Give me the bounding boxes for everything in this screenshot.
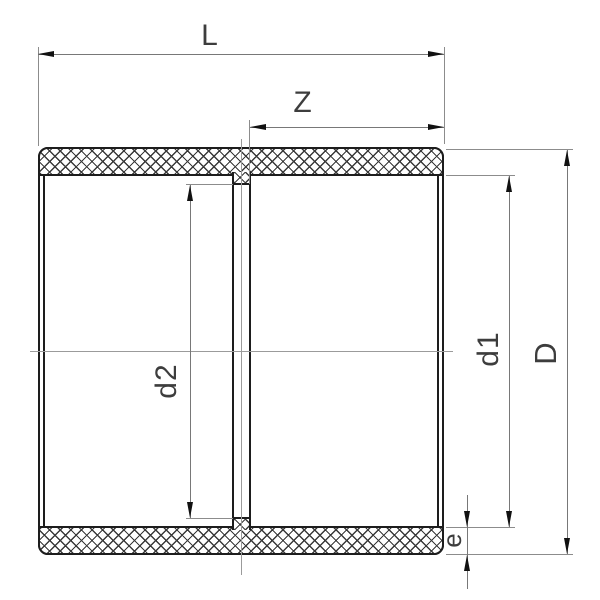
dim-label-Z: Z: [283, 87, 323, 119]
dimension-line: [567, 150, 568, 554]
dim-label-d2: d2: [150, 351, 184, 411]
arrowhead-up-icon: [506, 176, 512, 192]
dim-label-D: D: [528, 323, 562, 383]
stop-ring-bottom-ridge: [232, 517, 251, 530]
extension-line: [186, 184, 233, 185]
dim-label-L: L: [190, 20, 230, 52]
extension-line: [186, 518, 233, 519]
arrowhead-up-icon: [187, 185, 193, 201]
dimension-line: [190, 185, 191, 518]
dimension-line: [38, 54, 444, 55]
arrowhead-up-icon: [564, 150, 570, 166]
vertical-centerline: [241, 139, 242, 575]
arrowhead-down-icon: [564, 538, 570, 554]
extension-line: [446, 149, 573, 150]
arrowhead-left-icon: [250, 124, 266, 130]
dim-label-d1: d1: [472, 319, 506, 379]
dimension-line: [509, 176, 510, 527]
dim-label-e: e: [437, 520, 467, 560]
arrowhead-right-icon: [428, 124, 444, 130]
arrowhead-down-icon: [506, 511, 512, 527]
arrowhead-right-icon: [428, 51, 444, 57]
arrowhead-down-icon: [187, 502, 193, 518]
dimension-line: [250, 127, 444, 128]
technical-drawing-canvas: L Z d2 d1 D e: [0, 0, 600, 600]
arrowhead-left-icon: [38, 51, 54, 57]
extension-line: [38, 47, 39, 146]
extension-line: [249, 120, 250, 184]
horizontal-centerline: [30, 351, 453, 352]
